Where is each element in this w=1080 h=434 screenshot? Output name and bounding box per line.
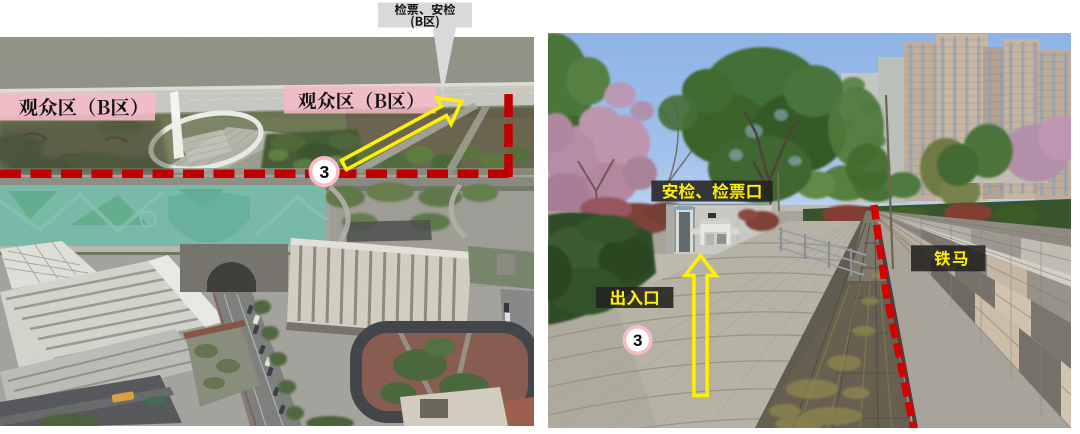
svg-text:3: 3 — [320, 162, 330, 182]
svg-text:3: 3 — [633, 331, 642, 350]
